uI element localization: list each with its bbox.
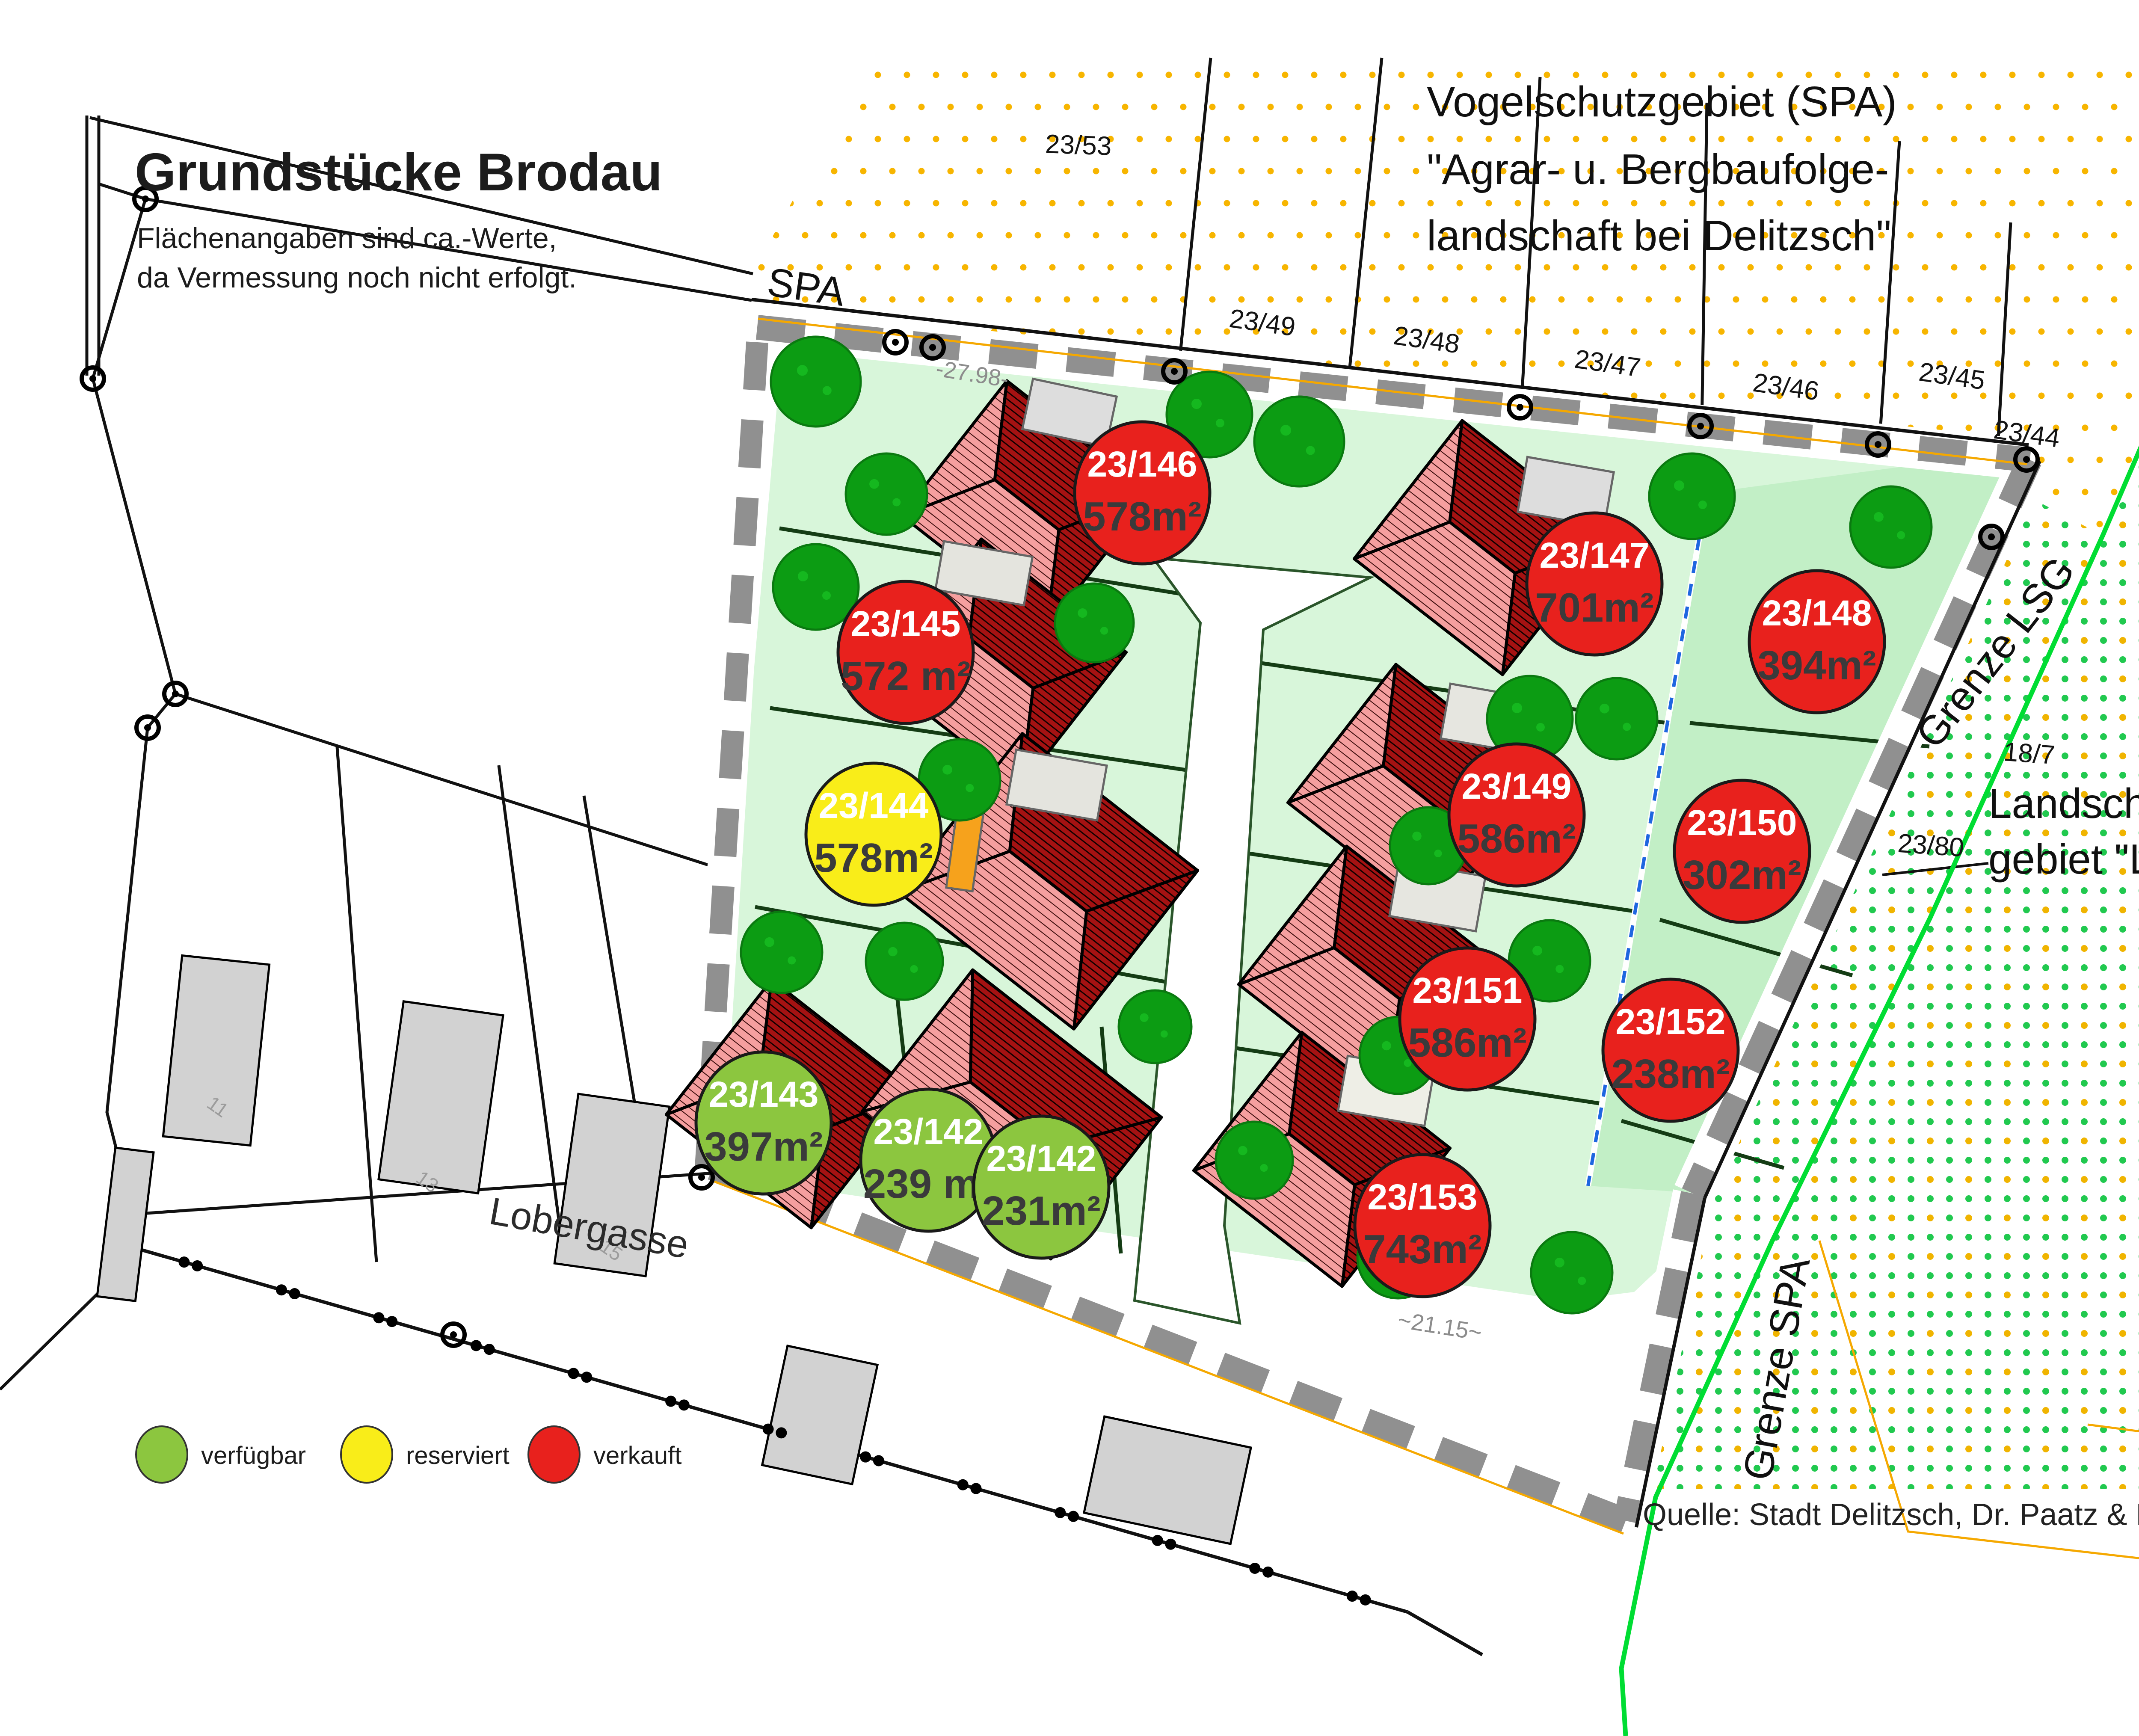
tree-icon [1216, 1122, 1293, 1199]
legend-label: reserviert [406, 1442, 510, 1469]
plot-id: 23/142 [987, 1138, 1096, 1179]
legend: verfügbarreserviertverkauft [136, 1426, 681, 1483]
survey-point-icon [442, 1324, 465, 1346]
page-subtitle-2: da Vermessung noch nicht erfolgt. [137, 261, 577, 294]
plot-id: 23/145 [851, 604, 961, 644]
plot-id: 23/147 [1540, 535, 1650, 575]
page-title: Grundstücke Brodau [135, 143, 662, 202]
survey-point-icon [164, 683, 187, 705]
plot-area: 578m² [814, 835, 933, 881]
plot-area: 231m² [982, 1188, 1101, 1234]
plot-id: 23/142 [874, 1111, 984, 1152]
survey-dot [1249, 1563, 1260, 1574]
tree-icon [1055, 584, 1134, 662]
plot-marker-23-150[interactable]: 23/150302m² [1674, 780, 1810, 922]
plot-area: 238m² [1611, 1051, 1730, 1097]
spa-zone-title-line3: landschaft bei Delitzsch" [1427, 212, 1891, 260]
survey-dot [471, 1340, 482, 1351]
spa-zone-title-line2: "Agrar- u. Bergbaufolge- [1427, 145, 1889, 193]
survey-dot [581, 1372, 592, 1383]
survey-dot [192, 1260, 203, 1271]
plot-id: 23/146 [1087, 444, 1197, 484]
survey-dot [484, 1344, 495, 1355]
survey-dot [1165, 1539, 1176, 1550]
plot-area: 586m² [1457, 816, 1576, 862]
survey-dot [289, 1288, 300, 1299]
plot-marker-23-146[interactable]: 23/146578m² [1075, 422, 1210, 564]
plot-id: 23/143 [709, 1074, 819, 1114]
legend-swatch-verfuegbar [136, 1426, 187, 1483]
plot-marker-23-142[interactable]: 23/142239 m² [861, 1089, 996, 1231]
plot-area: 743m² [1363, 1226, 1482, 1272]
survey-dot [1360, 1594, 1371, 1606]
plot-id: 23/150 [1687, 803, 1797, 843]
survey-dot [276, 1284, 287, 1295]
survey-dot [1068, 1511, 1079, 1522]
tree-icon [1119, 990, 1191, 1063]
survey-dot [1055, 1507, 1066, 1518]
legend-item-verfuegbar: verfügbar [136, 1426, 306, 1483]
tree-icon [1254, 397, 1344, 486]
tree-icon [866, 923, 943, 1000]
lsg-cut-label-line2: gebiet "Lo [1988, 835, 2139, 883]
survey-dot [1152, 1535, 1163, 1546]
plot-id: 23/148 [1762, 593, 1872, 633]
plot-area: 572 m² [841, 653, 971, 699]
survey-dot [776, 1427, 787, 1438]
plot-id: 23/144 [819, 785, 929, 826]
parcel-label: 23/53 [1045, 129, 1112, 161]
survey-point-icon [82, 367, 104, 390]
survey-dot [386, 1316, 397, 1327]
survey-dot [678, 1399, 690, 1410]
plot-area: 701m² [1535, 585, 1654, 631]
tree-icon [771, 337, 861, 427]
plot-id: 23/151 [1413, 970, 1523, 1010]
survey-dot [860, 1452, 871, 1463]
plot-marker-23-142[interactable]: 23/142231m² [974, 1116, 1109, 1258]
survey-dot [665, 1396, 676, 1407]
legend-item-verkauft: verkauft [528, 1426, 681, 1483]
tree-icon [1531, 1232, 1612, 1313]
legend-label: verfügbar [201, 1442, 306, 1469]
tree-icon [846, 453, 927, 535]
plot-area: 578m² [1083, 494, 1202, 539]
plot-area: 302m² [1683, 852, 1801, 898]
map-canvas: 11 13 15 [0, 0, 2139, 1736]
tree-icon [1850, 486, 1932, 568]
plot-id: 23/149 [1462, 766, 1572, 806]
plot-marker-23-144[interactable]: 23/144578m² [806, 763, 941, 905]
survey-dot [568, 1368, 579, 1379]
plot-marker-23-151[interactable]: 23/151586m² [1400, 948, 1535, 1090]
tree-icon [1649, 453, 1735, 539]
source-credit: Quelle: Stadt Delitzsch, Dr. Paatz & Par… [1643, 1498, 2139, 1532]
plot-marker-23-143[interactable]: 23/143397m² [696, 1052, 831, 1194]
survey-dot [1262, 1567, 1274, 1578]
survey-dot [763, 1424, 774, 1435]
plot-marker-23-152[interactable]: 23/152238m² [1603, 979, 1738, 1121]
plot-marker-23-148[interactable]: 23/148394m² [1749, 571, 1884, 713]
plot-marker-23-153[interactable]: 23/153743m² [1355, 1155, 1490, 1297]
tree-icon [1576, 678, 1657, 759]
plot-area: 586m² [1408, 1020, 1527, 1066]
survey-dot [873, 1455, 884, 1466]
plot-area: 394m² [1757, 643, 1876, 688]
tree-icon [741, 912, 822, 993]
survey-dot [957, 1479, 969, 1490]
plot-marker-23-147[interactable]: 23/147701m² [1527, 513, 1662, 655]
dimension-bottom: ~21.15~ [1396, 1307, 1484, 1345]
survey-dot [178, 1256, 190, 1268]
plot-marker-23-145[interactable]: 23/145572 m² [838, 581, 973, 723]
survey-dot [1347, 1591, 1358, 1602]
plot-marker-23-149[interactable]: 23/149586m² [1449, 744, 1584, 886]
legend-swatch-verkauft [528, 1426, 580, 1483]
legend-swatch-reserviert [341, 1426, 392, 1483]
plot-id: 23/153 [1368, 1177, 1478, 1217]
legend-item-reserviert: reserviert [341, 1426, 510, 1483]
plot-id: 23/152 [1616, 1001, 1726, 1042]
legend-label: verkauft [593, 1442, 681, 1469]
survey-dot [373, 1312, 384, 1323]
lsg-cut-label-line1: Landscha [1988, 780, 2139, 827]
plot-area: 397m² [704, 1124, 823, 1170]
page-subtitle-1: Flächenangaben sind ca.-Werte, [137, 222, 557, 255]
parcel-label: 18/7 [2003, 737, 2056, 770]
survey-dot [970, 1483, 981, 1494]
parcel-label: 23/80 [1897, 829, 1965, 863]
spa-zone-title-line1: Vogelschutzgebiet (SPA) [1427, 78, 1897, 126]
site-plan-map: 11 13 15 [0, 0, 2139, 1736]
